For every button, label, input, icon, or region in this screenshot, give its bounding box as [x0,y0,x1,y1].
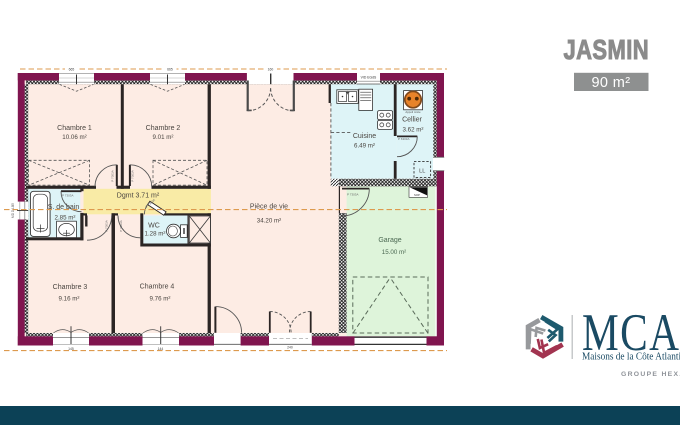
svg-text:SOP: SOP [414,193,420,197]
svg-text:665: 665 [167,67,173,71]
svg-text:WC: WC [148,223,160,230]
svg-text:9.01 m²: 9.01 m² [153,134,174,141]
svg-text:GROUPE HEXAOM: GROUPE HEXAOM [621,371,680,378]
svg-text:3.62 m²: 3.62 m² [403,127,424,134]
svg-text:Appoil mixte: Appoil mixte [405,110,421,114]
svg-text:Chambre 3: Chambre 3 [53,284,88,291]
svg-text:LL: LL [419,169,425,175]
svg-text:145: 145 [68,347,74,351]
svg-text:Chambre 2: Chambre 2 [146,125,181,132]
svg-text:P 7303A: P 7303A [131,170,135,181]
svg-text:S. de bain: S. de bain [48,204,80,211]
svg-text:Pièce de vie: Pièce de vie [250,203,288,210]
svg-text:JASMIN: JASMIN [564,35,649,66]
svg-text:P 7303A: P 7303A [119,220,123,231]
svg-text:Garage: Garage [378,237,401,244]
svg-text:240: 240 [287,345,293,349]
svg-text:Maisons de la Côte Atlantique: Maisons de la Côte Atlantique [582,351,680,362]
svg-text:144: 144 [158,347,164,351]
svg-text:34.20 m²: 34.20 m² [257,218,281,225]
svg-text:9.16 m²: 9.16 m² [59,296,80,303]
svg-text:Chambre 4: Chambre 4 [140,284,175,291]
svg-text:6.49 m²: 6.49 m² [354,143,375,150]
svg-text:9.76 m²: 9.76 m² [150,296,171,303]
svg-text:1.28 m²: 1.28 m² [145,231,166,238]
svg-text:Cellier: Cellier [402,117,423,124]
svg-text:90 m²: 90 m² [591,75,630,91]
svg-text:P 7303A: P 7303A [347,193,358,197]
svg-text:Dgmt 3.71 m²: Dgmt 3.71 m² [117,193,160,200]
svg-text:15.00 m²: 15.00 m² [382,249,406,256]
svg-text:Cuisine: Cuisine [353,133,376,140]
svg-text:P 7303A: P 7303A [111,170,115,181]
svg-text:VID EGdS: VID EGdS [361,76,377,80]
svg-text:P 7303A: P 7303A [62,194,73,198]
svg-text:Chambre 1: Chambre 1 [57,125,92,132]
svg-text:2.85 m²: 2.85 m² [55,215,76,222]
svg-text:P 7303A: P 7303A [105,220,109,231]
svg-text:665: 665 [69,67,75,71]
svg-text:P 6303A: P 6303A [398,137,409,141]
svg-text:160: 160 [268,67,274,71]
svg-text:10.06 m²: 10.06 m² [62,134,86,141]
svg-text:MD D4-B5: MD D4-B5 [11,203,15,218]
